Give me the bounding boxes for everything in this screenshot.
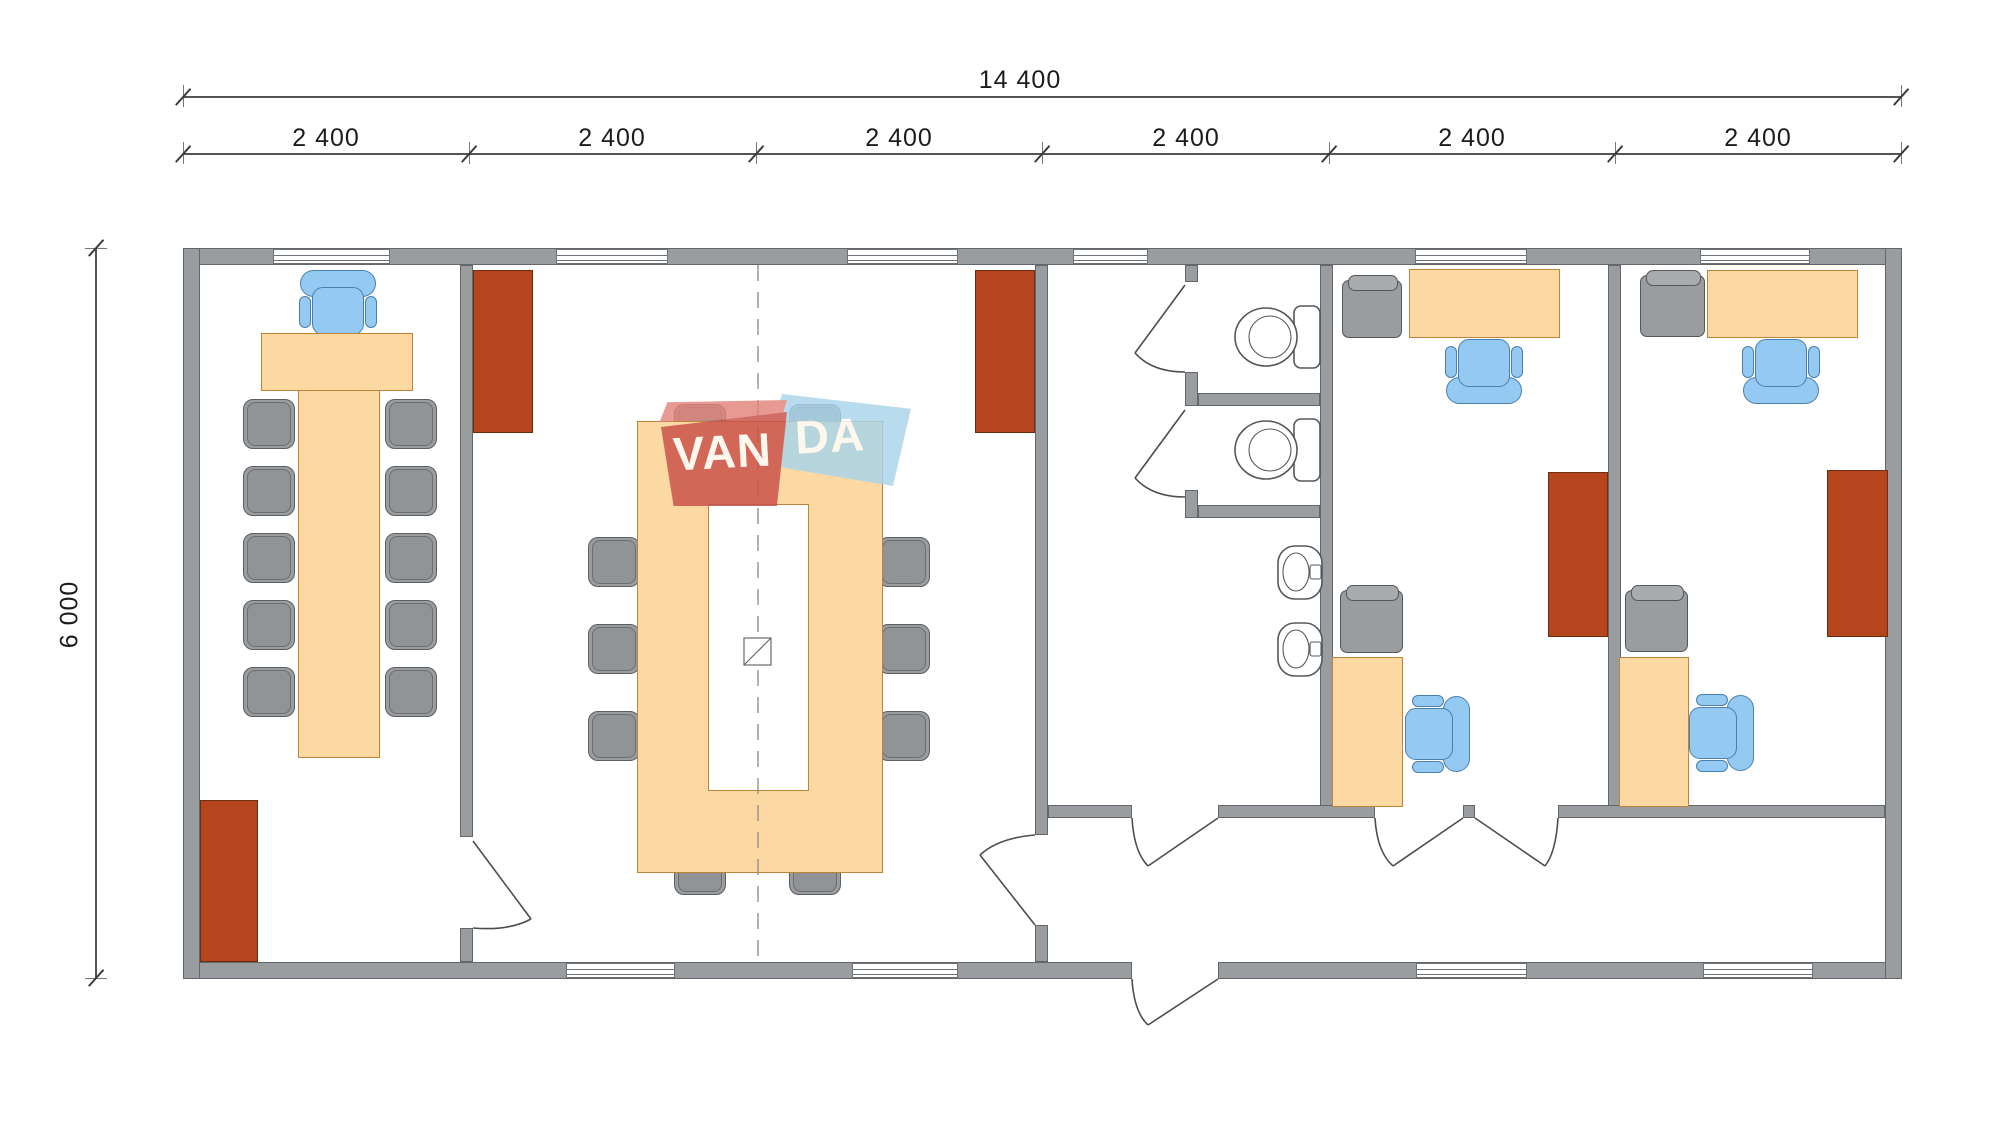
watermark-text-left: VAN <box>672 421 773 481</box>
dimension-module-5: 2 400 <box>1412 124 1532 153</box>
wc-stall-divider-2 <box>1198 505 1320 518</box>
door-wc-stall-2 <box>1135 410 1185 497</box>
meeting-chair <box>878 711 930 761</box>
office-chair-office2-top <box>1741 338 1821 404</box>
toilet-2 <box>1235 419 1320 481</box>
locker-office2-bottom <box>1625 590 1688 652</box>
conference-table-room1 <box>298 390 380 758</box>
side-chair <box>385 533 437 583</box>
meeting-chair <box>588 711 640 761</box>
dimension-module-4: 2 400 <box>1126 124 1246 153</box>
side-chair <box>243 466 295 516</box>
cabinet-office2 <box>1827 470 1888 637</box>
side-chair <box>385 600 437 650</box>
meeting-chair <box>878 624 930 674</box>
cabinet-meeting-left <box>473 270 533 433</box>
chair-seat <box>312 287 364 335</box>
door-meeting-hall <box>980 835 1035 925</box>
side-chair <box>243 533 295 583</box>
side-chair <box>385 466 437 516</box>
corridor-wall-a <box>1048 805 1132 818</box>
meeting-chair <box>878 537 930 587</box>
desk-office1-top <box>1409 269 1560 338</box>
door-entrance <box>1132 979 1218 1025</box>
desk-office2-top <box>1707 270 1858 338</box>
office-chair-office1-bottom <box>1404 694 1470 774</box>
window-top-office1 <box>1415 249 1527 264</box>
window-bottom-meeting-2 <box>852 963 958 978</box>
floor-plan-canvas: 14 400 2 400 2 400 2 400 2 400 2 400 2 4… <box>0 0 2000 1147</box>
side-chair <box>243 667 295 717</box>
wc-stall-divider-1 <box>1198 393 1320 406</box>
dimension-line-height <box>95 248 97 979</box>
dimension-height: 6 000 <box>56 545 85 685</box>
window-top-meeting-2 <box>847 249 958 264</box>
partition-meeting-hall-stub <box>1035 925 1048 962</box>
window-top-office2 <box>1700 249 1810 264</box>
meeting-chair <box>588 624 640 674</box>
door-room1 <box>473 841 531 929</box>
corridor-wall-c <box>1463 805 1475 818</box>
cabinet-office1 <box>1548 472 1608 637</box>
sink-2 <box>1278 623 1322 676</box>
wc-stall-front-stub-bottom <box>1185 490 1198 518</box>
exterior-wall-top <box>183 248 1902 265</box>
window-top-room1 <box>273 249 390 264</box>
door-wc-vestibule <box>1132 818 1218 866</box>
office-chair-office1-top <box>1444 338 1524 404</box>
dimension-module-6: 2 400 <box>1698 124 1818 153</box>
partition-room1-meeting-stub <box>460 928 473 962</box>
side-chair <box>243 399 295 449</box>
dimension-total-width: 14 400 <box>950 66 1090 95</box>
chair-armrest <box>299 296 311 328</box>
executive-chair-room1 <box>298 270 378 336</box>
door-office1 <box>1475 818 1558 866</box>
side-chair <box>243 600 295 650</box>
meeting-chair <box>588 537 640 587</box>
cabinet-room1 <box>200 800 258 962</box>
dimension-module-3: 2 400 <box>839 124 959 153</box>
window-bottom-office1 <box>1416 963 1527 978</box>
door-corridor-mid <box>1375 818 1463 866</box>
desk-office2-bottom <box>1619 657 1689 807</box>
chair-armrest <box>365 296 377 328</box>
meeting-table-opening <box>708 504 809 791</box>
partition-meeting-hall <box>1035 265 1048 835</box>
exterior-wall-left <box>183 248 200 979</box>
corridor-wall-d <box>1558 805 1885 818</box>
vanda-watermark: VAN DA <box>655 390 915 510</box>
locker-office2-top <box>1640 275 1705 337</box>
dimension-line-total <box>183 96 1902 98</box>
dimension-module-1: 2 400 <box>266 124 386 153</box>
locker-office1-top <box>1342 280 1402 338</box>
window-top-wc <box>1073 249 1148 264</box>
door-wc-stall-1 <box>1135 285 1185 372</box>
sink-1 <box>1278 546 1322 599</box>
window-top-meeting-1 <box>556 249 668 264</box>
cabinet-meeting-right <box>975 270 1035 433</box>
window-bottom-meeting-1 <box>566 963 675 978</box>
toilet-1 <box>1235 306 1320 368</box>
office-chair-office2-bottom <box>1688 693 1754 773</box>
watermark-text-right: DA <box>794 406 867 465</box>
partition-room1-meeting <box>460 265 473 837</box>
desk-office1-bottom <box>1332 657 1403 807</box>
side-chair <box>385 399 437 449</box>
side-chair <box>385 667 437 717</box>
wc-stall-front-stub-top <box>1185 265 1198 282</box>
window-bottom-office2 <box>1703 963 1813 978</box>
dimension-module-2: 2 400 <box>552 124 672 153</box>
head-desk-room1 <box>261 333 413 391</box>
wc-stall-front-stub-mid <box>1185 372 1198 406</box>
locker-office1-bottom <box>1340 590 1403 653</box>
